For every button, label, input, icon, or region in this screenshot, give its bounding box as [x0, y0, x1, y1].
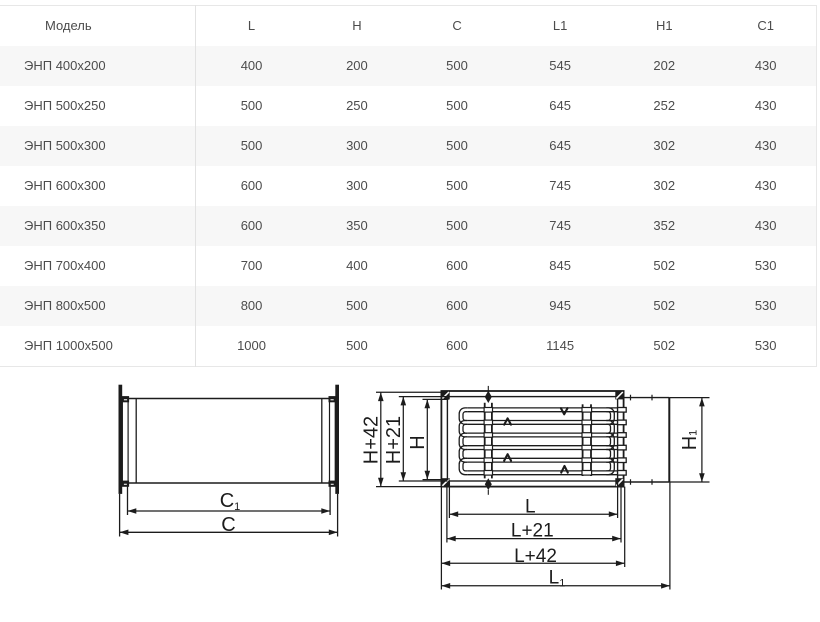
- svg-text:H: H: [407, 435, 429, 449]
- svg-text:L: L: [525, 497, 536, 518]
- svg-text:H+21: H+21: [383, 416, 405, 464]
- svg-text:L+21: L+21: [511, 521, 554, 542]
- svg-text:H1: H1: [679, 430, 701, 451]
- svg-text:C1: C1: [220, 490, 241, 513]
- svg-text:C: C: [221, 514, 235, 536]
- svg-text:L+42: L+42: [514, 546, 557, 567]
- svg-text:H+42: H+42: [360, 416, 382, 464]
- svg-text:L1: L1: [549, 567, 566, 589]
